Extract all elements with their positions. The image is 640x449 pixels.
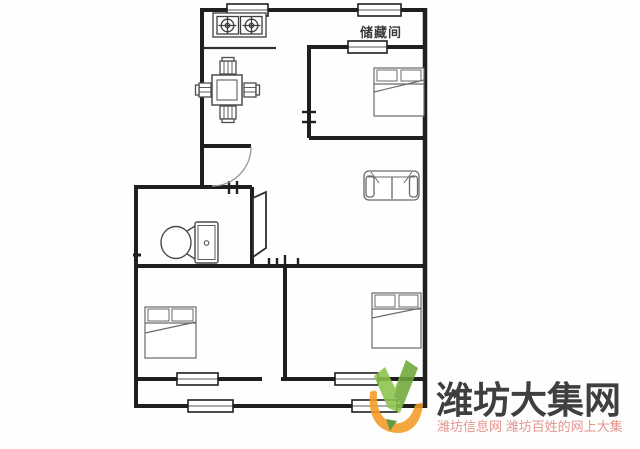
- bed-bedroom1-icon: [374, 68, 424, 116]
- window-balcony-inner-left: [177, 373, 218, 385]
- bed-bedroom2-icon: [145, 307, 196, 358]
- sofa-icon: [364, 171, 419, 200]
- window-balcony-inner-right: [335, 373, 378, 385]
- window-balcony-outer-left: [188, 400, 233, 412]
- bathroom-door-leaf: [253, 192, 266, 257]
- dining-table-icon: [196, 58, 260, 123]
- window-bedroom1-top: [348, 41, 387, 53]
- bed-bedroom3-icon: [372, 293, 421, 348]
- window-storage-top: [358, 4, 401, 16]
- toilet-icon: [161, 222, 218, 263]
- watermark-logo-icon: [370, 360, 424, 433]
- watermark-subtitle: 潍坊信息网 潍坊百姓的网上大集: [437, 416, 623, 435]
- floorplan-page: 储藏间 潍坊大集网 潍坊信息网 潍坊百姓的网上大集: [0, 0, 640, 449]
- stove-icon: [213, 13, 266, 37]
- entry-door-arc: [212, 147, 251, 186]
- storage-room-label: 储藏间: [360, 22, 402, 41]
- windows: [177, 4, 401, 412]
